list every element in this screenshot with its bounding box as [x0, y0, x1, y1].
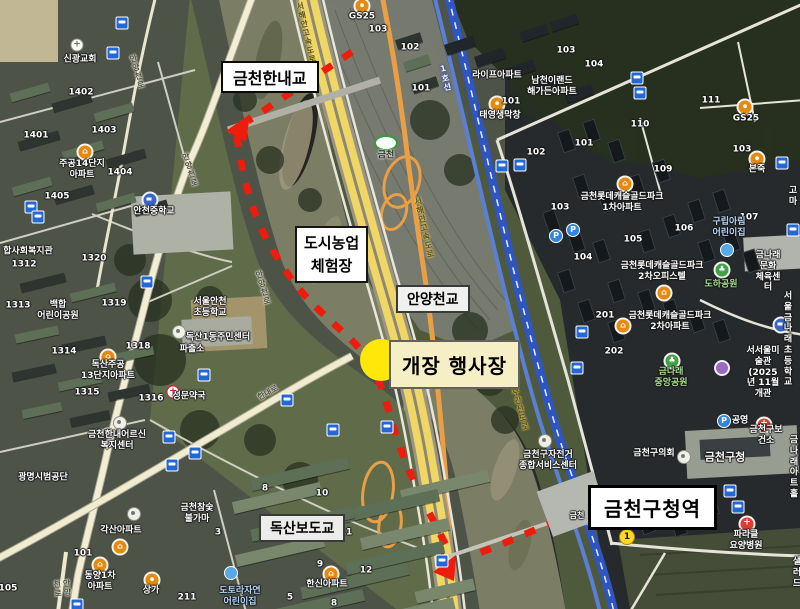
- bus-icon: [141, 276, 154, 289]
- daycare-icon: [720, 243, 734, 257]
- bus-icon: [787, 224, 800, 237]
- terrain-patch: [0, 0, 58, 62]
- bus-icon: [189, 447, 202, 460]
- apt-icon: [323, 566, 340, 583]
- park-icon: [714, 262, 731, 279]
- terrain-patch: [181, 316, 252, 348]
- label-geumcheon-hannae-bridge: 금천한내교: [221, 61, 319, 93]
- apt-icon: [615, 318, 632, 335]
- pharm-icon: [167, 386, 180, 399]
- museum-icon: [714, 360, 730, 376]
- bus-icon: [71, 599, 84, 609]
- terrain-patch: [700, 436, 771, 460]
- bus-icon: [107, 47, 120, 60]
- bus-icon: [631, 72, 644, 85]
- bus-icon: [576, 326, 589, 339]
- apt-icon: [92, 557, 109, 574]
- parking-icon: [717, 414, 731, 428]
- daycare-icon: [224, 566, 238, 580]
- office-icon: [172, 325, 186, 339]
- bus-icon: [116, 17, 129, 30]
- parking-icon: [549, 229, 563, 243]
- shop-icon: [144, 572, 161, 589]
- shop-icon: [749, 151, 766, 168]
- school-icon: [142, 192, 159, 209]
- bus-icon: [381, 421, 394, 434]
- bus-icon: [514, 159, 527, 172]
- bus-icon: [281, 394, 294, 407]
- park-icon: [664, 353, 681, 370]
- bus-icon: [327, 424, 340, 437]
- bus-icon: [724, 485, 737, 498]
- bus-icon: [198, 369, 211, 382]
- label-anyangcheon-bridge: 안양천교: [396, 285, 470, 313]
- office-icon: [127, 507, 141, 521]
- shop-icon: [737, 99, 754, 116]
- label-urban-farm-experience: 도시농업 체험장: [295, 226, 368, 283]
- bus-icon: [166, 459, 179, 472]
- apt-icon: [77, 144, 94, 161]
- bus-icon: [571, 362, 584, 375]
- hospital-icon: [756, 417, 773, 434]
- office-icon: [677, 450, 691, 464]
- bus-icon: [163, 431, 176, 444]
- shop-icon: [489, 96, 506, 113]
- ic-icon: [374, 135, 398, 151]
- label-doksan-footbridge: 독산보도교: [259, 514, 345, 542]
- satellite-map[interactable]: 금천한내교 도시농업 체험장 안양천교 개장 행사장 독산보도교 금천구청역 신…: [0, 0, 800, 609]
- bus-icon: [32, 211, 45, 224]
- apt-icon: [100, 349, 117, 366]
- office-icon: [113, 416, 127, 430]
- parking-icon: [566, 223, 580, 237]
- label-opening-event-venue: 개장 행사장: [389, 340, 520, 389]
- label-geumcheon-gu-office-station: 금천구청역: [588, 485, 717, 530]
- bus-icon: [496, 160, 509, 173]
- church-icon: [71, 39, 84, 52]
- hospital-icon: [739, 516, 756, 533]
- bus-icon: [732, 501, 745, 514]
- bus-icon: [634, 87, 647, 100]
- school-icon: [773, 317, 790, 334]
- office-icon: [538, 434, 552, 448]
- bus-icon: [776, 157, 789, 170]
- apt-icon: [112, 539, 129, 556]
- bus-icon: [436, 555, 449, 568]
- apt-icon: [617, 176, 634, 193]
- apt-icon: [656, 285, 673, 302]
